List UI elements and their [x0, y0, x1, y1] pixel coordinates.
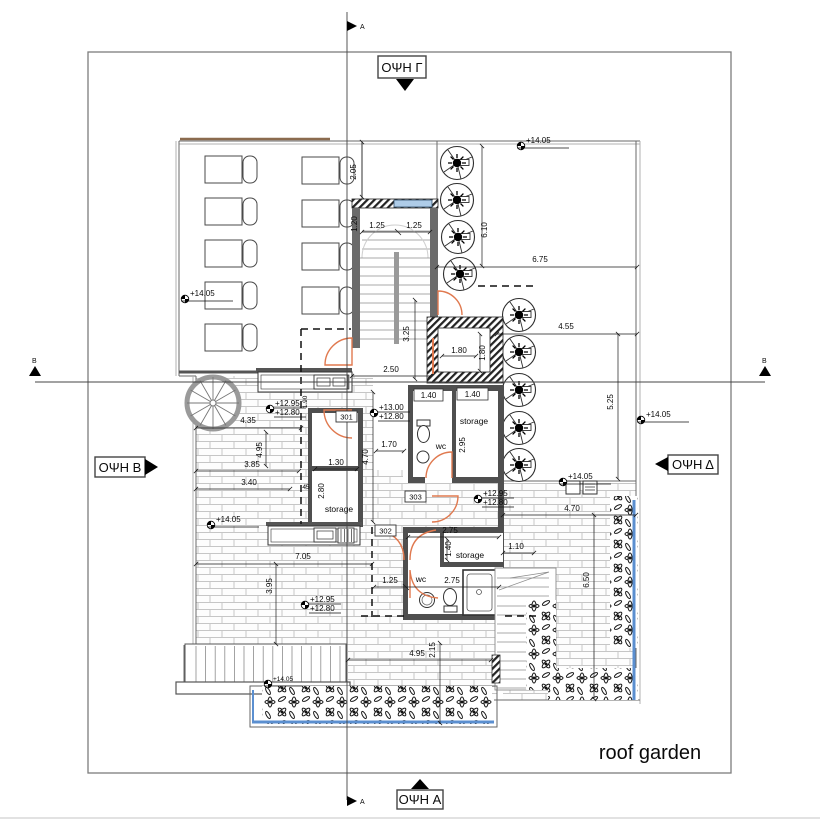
toilet-bowl	[418, 426, 430, 443]
view-flag-left: ΟΨΗ B	[95, 457, 158, 477]
dim-text: 1.90	[302, 395, 309, 408]
view-flag-right: ΟΨΗ Δ	[655, 455, 718, 474]
section-arrow-icon	[759, 366, 771, 376]
level-text: +12.95	[275, 399, 300, 408]
dim-text: 6.75	[532, 255, 548, 264]
sun-lounger	[302, 243, 354, 270]
tree-icon	[503, 449, 536, 482]
level-text: +14.05	[568, 472, 593, 481]
section-label-a-bottom: A	[360, 799, 365, 806]
dim-text: 1.30	[328, 458, 344, 467]
level-marker: +13.00 +12.80	[370, 403, 410, 421]
level-text: +12.80	[275, 408, 300, 417]
tree-icon	[441, 184, 474, 217]
toilet-bowl	[444, 589, 457, 606]
room-tag-303: 303	[409, 493, 422, 502]
wall	[430, 208, 438, 318]
dim-text: 3.40	[241, 478, 257, 487]
dim-text: 1.40	[421, 391, 437, 400]
section-arrow-icon	[347, 21, 357, 31]
level-text: +14.05	[216, 515, 241, 524]
section-label-b-right: B	[762, 358, 767, 365]
dim-text: 1.20	[350, 216, 359, 232]
stair-treads	[360, 258, 394, 339]
room-tag-302: 302	[379, 527, 392, 536]
sun-lounger	[302, 200, 354, 227]
level-text: +13.00	[379, 403, 404, 412]
level-marker: +14.05	[637, 410, 689, 424]
dim-text: 45	[302, 484, 310, 491]
sun-lounger	[205, 240, 257, 267]
door-swing	[438, 291, 462, 315]
level-text: +12.95	[483, 489, 508, 498]
dim-text: 2.15	[428, 642, 437, 658]
dim-text: 1.25	[406, 221, 422, 230]
tree-icon	[444, 258, 477, 291]
tree-icon	[441, 147, 474, 180]
view-flag-label: ΟΨΗ Γ	[381, 60, 422, 75]
level-marker: +14.05	[559, 472, 611, 486]
dim-text: 2.80	[317, 483, 326, 499]
flower-bed	[548, 668, 638, 700]
sink	[417, 451, 429, 463]
floor-plan-sheet: A A B B	[0, 0, 820, 823]
level-text: +12.80	[483, 498, 508, 507]
dim-text: 1.25	[382, 576, 398, 585]
dim-text: 4.55	[558, 322, 574, 331]
dim-text: 1.80	[451, 346, 467, 355]
view-flag-label: ΟΨΗ Δ	[672, 457, 714, 472]
counter-upper	[256, 368, 352, 392]
view-direction-icon	[145, 459, 158, 475]
level-text: +12.80	[379, 412, 404, 421]
view-direction-icon	[396, 79, 414, 91]
view-flag-top: ΟΨΗ Γ	[378, 56, 426, 91]
level-text: +14.05	[273, 676, 293, 683]
dim-text: 4.95	[255, 442, 264, 458]
level-marker: +14.05	[517, 136, 569, 150]
section-label-a-top: A	[360, 24, 365, 31]
room-label-wc: wc	[435, 441, 447, 451]
level-text: +14.05	[526, 136, 551, 145]
main-staircase	[352, 199, 438, 348]
room-tag-301: 301	[340, 413, 353, 422]
sun-lounger	[302, 287, 354, 314]
door-swing	[325, 338, 352, 365]
tree-icon	[503, 412, 536, 445]
dim-text: 3.25	[402, 326, 411, 342]
floor-plan-drawing: A A B B	[0, 0, 820, 823]
section-arrow-icon	[29, 366, 41, 376]
section-arrow-icon	[347, 796, 357, 806]
view-flag-label: ΟΨΗ B	[99, 460, 142, 475]
dim-text: 4.95	[409, 649, 425, 658]
drawing-title: roof garden	[599, 742, 701, 764]
dim-text: 1.40	[465, 390, 481, 399]
wall-pier	[492, 655, 500, 683]
dim-text: 3.95	[265, 578, 274, 594]
window	[394, 200, 432, 207]
room-label-storage: storage	[460, 416, 489, 426]
dim-text: 2.75	[442, 526, 458, 535]
view-flag-bottom: ΟΨΗ A	[397, 779, 443, 809]
view-direction-icon	[655, 457, 668, 471]
sun-lounger	[205, 156, 257, 183]
dim-text: 6.50	[582, 572, 591, 588]
tree-icon	[503, 299, 536, 332]
dim-text: 1.25	[369, 221, 385, 230]
dim-text: 1.10	[508, 542, 524, 551]
tree-icon	[503, 336, 536, 369]
level-text: +12.95	[310, 595, 335, 604]
dim-text: 3.85	[244, 460, 260, 469]
sun-lounger	[302, 157, 354, 184]
toilet	[444, 606, 457, 612]
flower-bed	[262, 686, 492, 724]
dim-text: 2.50	[383, 365, 399, 374]
stair-divider	[394, 252, 399, 344]
level-text: +14.05	[190, 289, 215, 298]
sun-lounger	[205, 198, 257, 225]
dim-text: 4.70	[564, 504, 580, 513]
spiral-staircase	[187, 377, 239, 429]
vent-unit	[583, 481, 597, 494]
level-text: +14.05	[646, 410, 671, 419]
room-label-storage: storage	[456, 550, 485, 560]
dim-text: 7.05	[295, 552, 311, 561]
room-label-storage: storage	[325, 504, 354, 514]
sun-lounger	[205, 324, 257, 351]
room-label-wc: wc	[415, 574, 427, 584]
dim-text: 1.80	[478, 345, 487, 361]
dim-text: 5.25	[606, 394, 615, 410]
view-flag-label: ΟΨΗ A	[399, 792, 442, 807]
dim-text: 2.75	[444, 576, 460, 585]
dim-text: 1.70	[381, 440, 397, 449]
dim-text: 4.70	[361, 449, 370, 465]
dim-text: 4.35	[240, 416, 256, 425]
counter-lower	[266, 522, 362, 545]
view-direction-icon	[411, 779, 429, 789]
dim-text: 2.05	[349, 164, 358, 180]
tree-icon	[503, 374, 536, 407]
dim-text: 1.40	[444, 541, 453, 557]
sun-loungers	[205, 156, 354, 351]
dim-text: 6.10	[480, 222, 489, 238]
level-text: +12.80	[310, 604, 335, 613]
section-label-b-left: B	[32, 358, 37, 365]
tree-icon	[442, 221, 475, 254]
dim-text: 2.95	[458, 437, 467, 453]
